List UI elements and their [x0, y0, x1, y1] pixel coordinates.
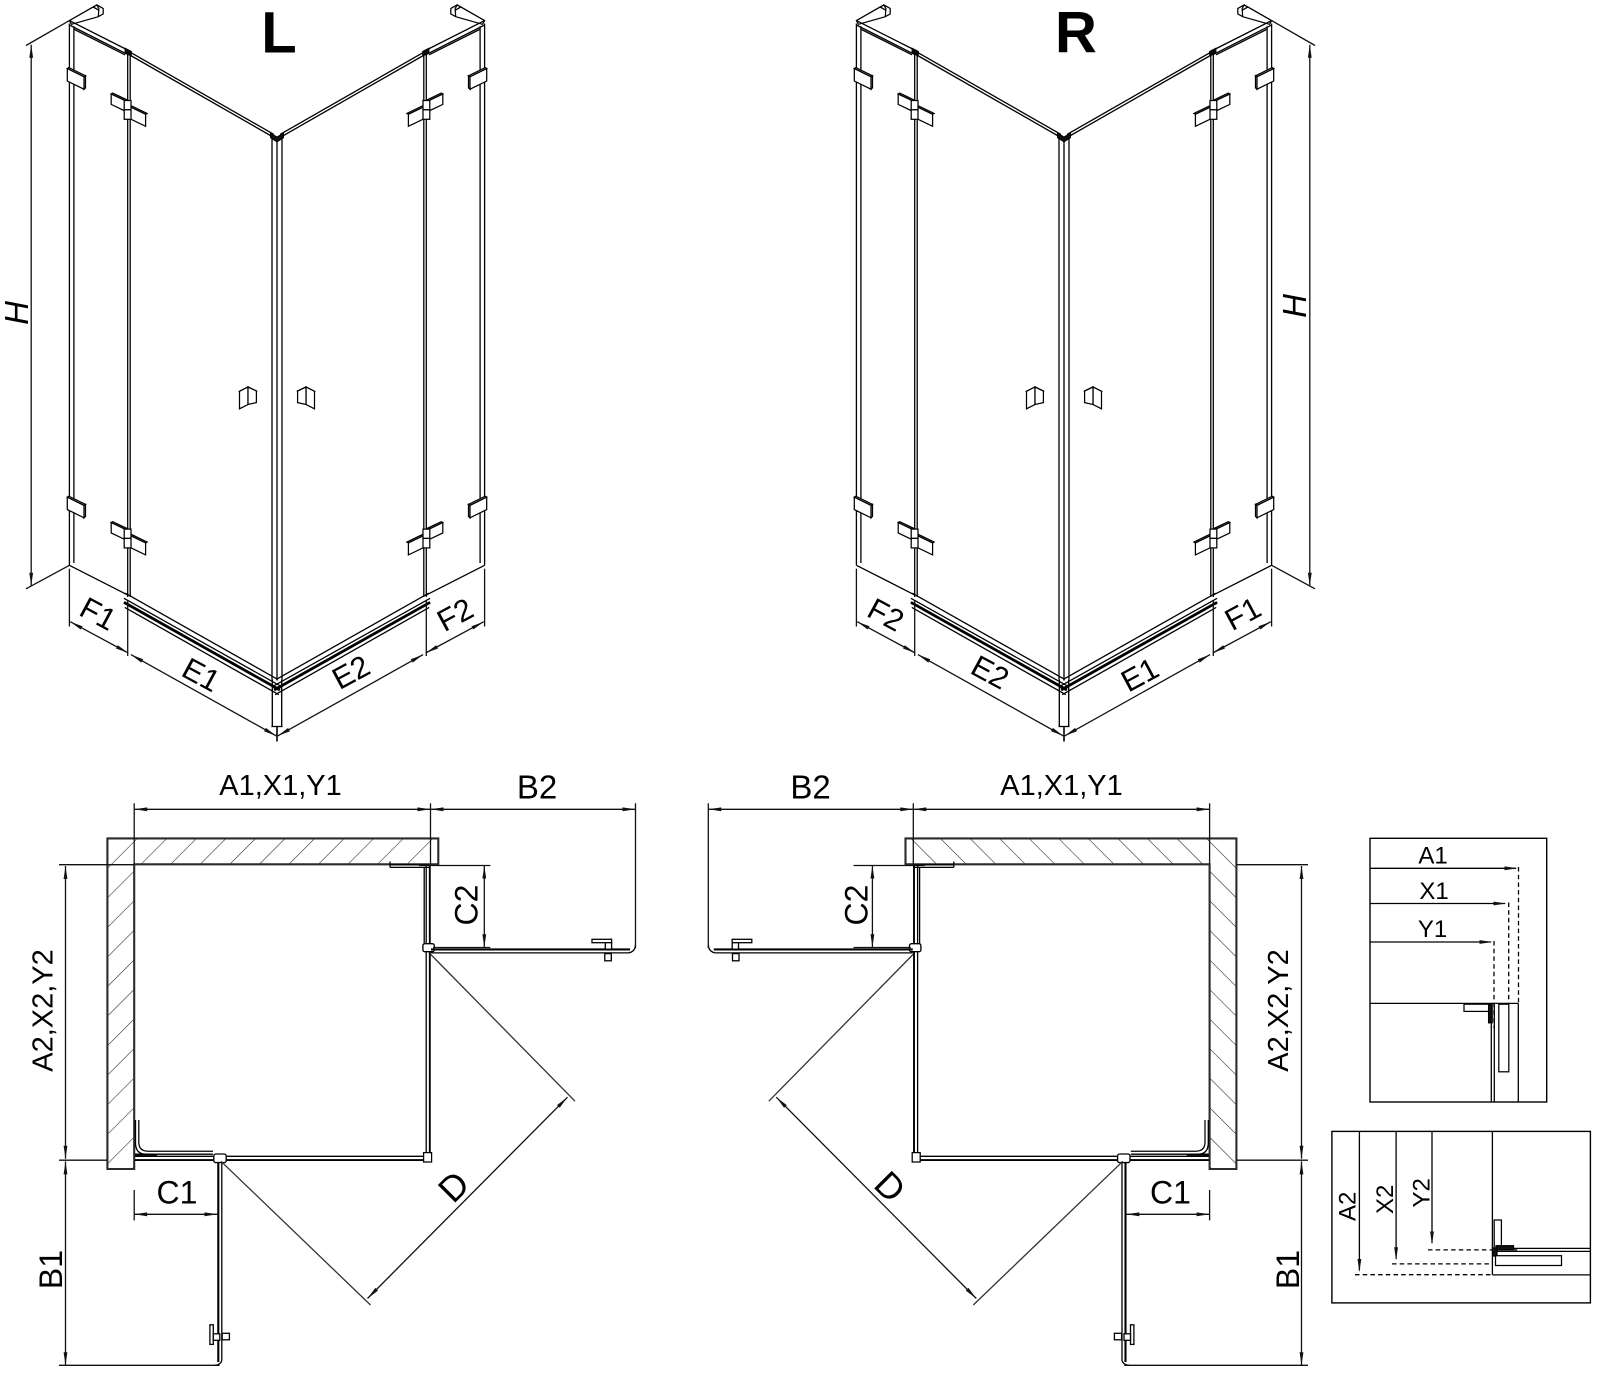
svg-text:E1: E1: [176, 651, 225, 699]
svg-text:F1: F1: [74, 591, 121, 638]
svg-text:B1: B1: [1270, 1250, 1306, 1289]
svg-text:B2: B2: [790, 769, 830, 806]
svg-text:A2,X2,Y2: A2,X2,Y2: [1263, 949, 1295, 1072]
svg-text:A1,X1,Y1: A1,X1,Y1: [1000, 770, 1123, 802]
svg-text:H: H: [0, 301, 35, 325]
svg-text:Y1: Y1: [1418, 916, 1447, 943]
svg-text:A1,X1,Y1: A1,X1,Y1: [219, 770, 342, 802]
svg-text:F2: F2: [862, 592, 909, 639]
svg-text:C2: C2: [449, 885, 485, 926]
svg-text:D: D: [866, 1163, 913, 1210]
svg-text:E1: E1: [1116, 651, 1165, 699]
svg-text:D: D: [430, 1163, 477, 1210]
svg-text:F2: F2: [432, 592, 479, 639]
svg-text:R: R: [1055, 0, 1097, 65]
svg-text:C1: C1: [1150, 1175, 1191, 1211]
svg-text:X2: X2: [1372, 1185, 1399, 1214]
svg-text:C1: C1: [157, 1175, 198, 1211]
svg-text:A2: A2: [1334, 1192, 1361, 1221]
svg-text:L: L: [261, 0, 296, 65]
svg-text:Y2: Y2: [1408, 1178, 1435, 1207]
svg-text:A1: A1: [1418, 842, 1447, 869]
svg-text:A2,X2,Y2: A2,X2,Y2: [28, 949, 60, 1072]
svg-text:C2: C2: [839, 885, 875, 926]
svg-text:H: H: [1276, 294, 1313, 318]
svg-text:F1: F1: [1219, 591, 1266, 638]
svg-text:X1: X1: [1419, 878, 1448, 905]
svg-text:B2: B2: [517, 769, 557, 806]
svg-text:B1: B1: [33, 1250, 69, 1289]
